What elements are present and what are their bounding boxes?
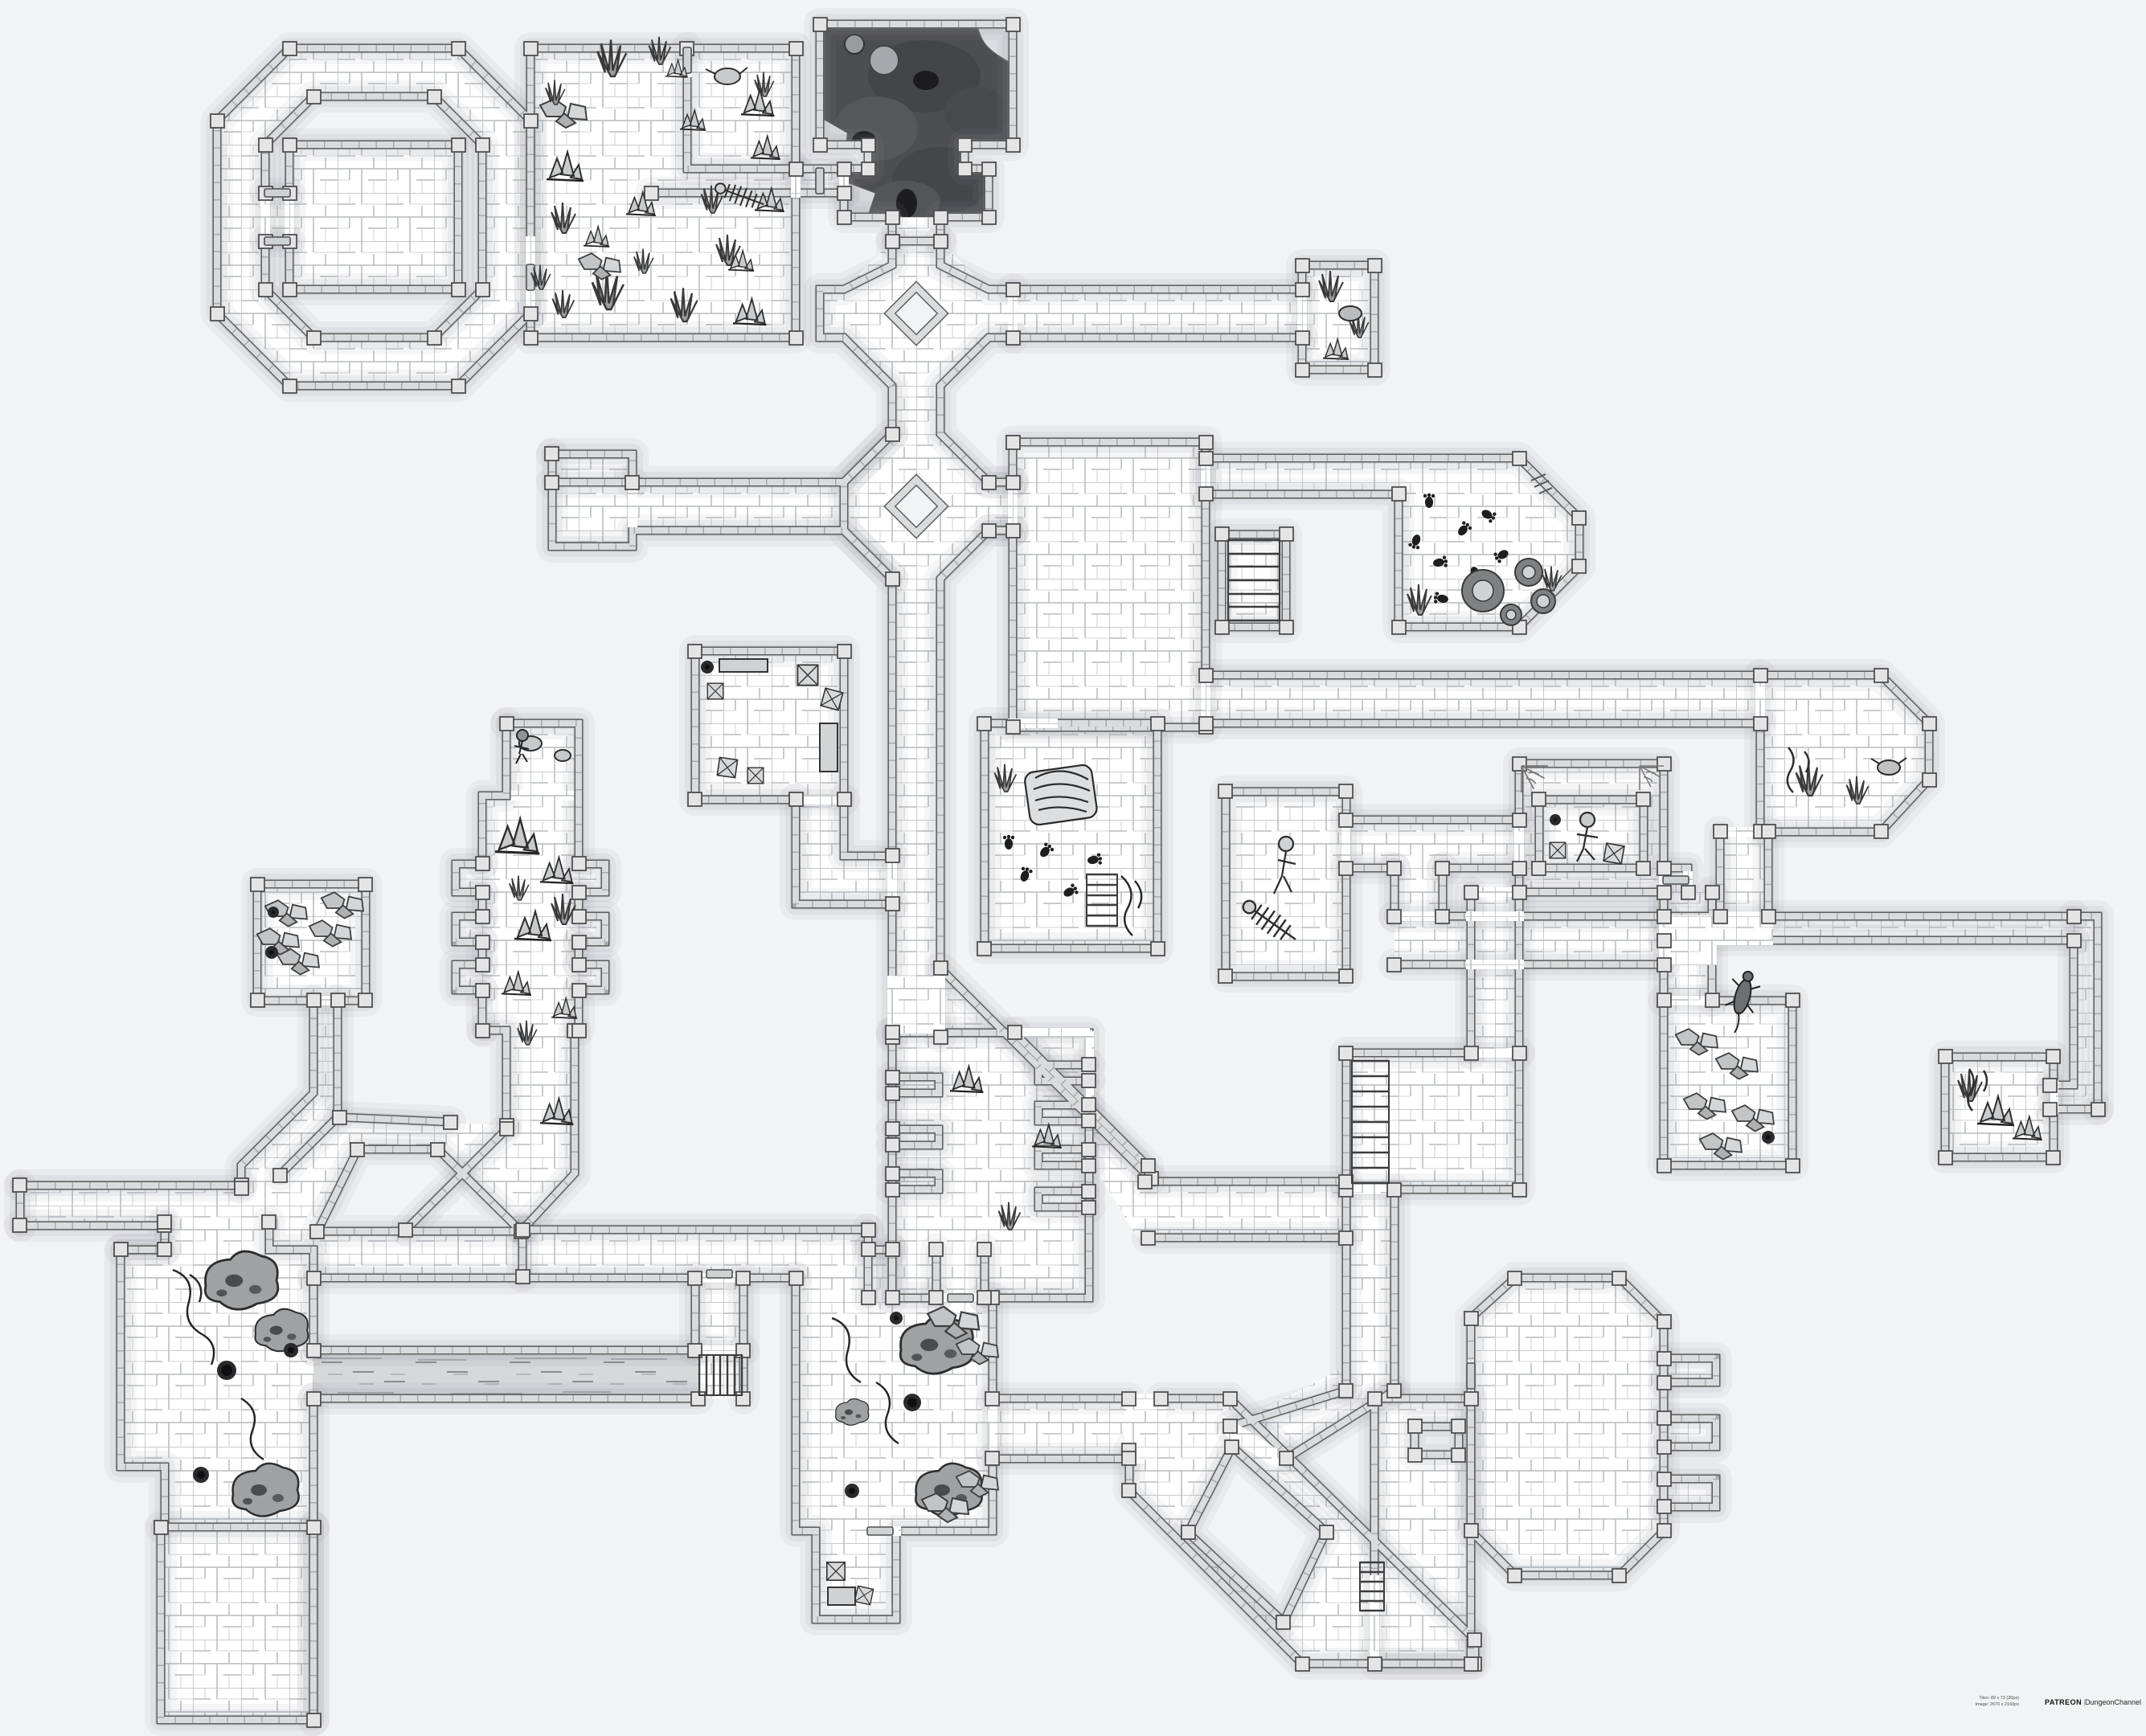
svg-text:PATREON: PATREON [2045,1698,2082,1706]
svg-text:DungeonChannel: DungeonChannel [2085,1698,2141,1706]
svg-text:Image: 2670 x 2160px: Image: 2670 x 2160px [1976,1702,2020,1707]
svg-text:Tiles: 89 x 72 (30px): Tiles: 89 x 72 (30px) [1979,1696,2019,1701]
